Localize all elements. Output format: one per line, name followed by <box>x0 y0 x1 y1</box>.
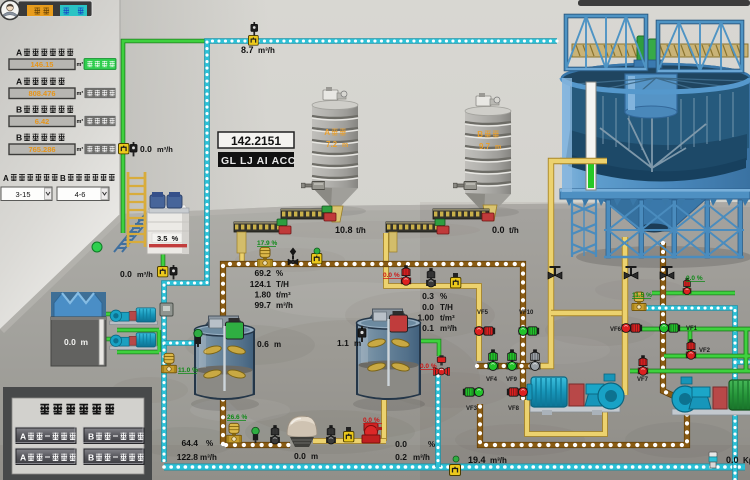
svg-text:VF5: VF5 <box>477 310 489 316</box>
svg-text:765.286: 765.286 <box>28 145 55 154</box>
svg-text:t/m³: t/m³ <box>276 291 291 300</box>
svg-text:A: A <box>20 432 26 442</box>
svg-text:t/h: t/h <box>509 226 519 235</box>
svg-text:B: B <box>88 453 94 463</box>
svg-text:VF6: VF6 <box>610 327 622 333</box>
svg-text:m³/h: m³/h <box>200 453 217 462</box>
svg-text:11.0 %: 11.0 % <box>178 367 198 374</box>
svg-text:11.5 %: 11.5 % <box>632 292 652 299</box>
svg-text:VF9: VF9 <box>506 377 518 383</box>
svg-text:0.3: 0.3 <box>422 291 434 301</box>
svg-text:0.0: 0.0 <box>120 269 132 279</box>
svg-text:808.476: 808.476 <box>28 89 55 98</box>
svg-text:64.4: 64.4 <box>181 438 198 448</box>
svg-text:m: m <box>495 144 501 151</box>
svg-text:0.0 %: 0.0 % <box>420 363 437 370</box>
svg-text:B: B <box>477 130 483 139</box>
svg-text:0.0: 0.0 <box>422 302 434 312</box>
svg-text:Kp: Kp <box>743 456 750 465</box>
svg-text:26.6 %: 26.6 % <box>227 414 247 421</box>
svg-text:t/m³: t/m³ <box>440 314 455 323</box>
svg-text:m³/h: m³/h <box>440 324 457 333</box>
svg-text:m: m <box>274 340 281 349</box>
svg-text:m³: m³ <box>77 146 84 153</box>
svg-text:0.2: 0.2 <box>395 452 407 462</box>
svg-text:A: A <box>20 453 26 463</box>
svg-text:B: B <box>16 105 22 115</box>
svg-text:%: % <box>428 440 435 449</box>
svg-text:19.4: 19.4 <box>468 455 486 465</box>
svg-text:0.0: 0.0 <box>395 439 407 449</box>
svg-text:A: A <box>16 48 22 58</box>
svg-text:VF3: VF3 <box>466 406 478 412</box>
svg-text:m³/h: m³/h <box>490 456 507 465</box>
svg-text:0.0 m: 0.0 m <box>64 337 89 347</box>
svg-text:m³: m³ <box>77 61 84 68</box>
svg-text:VF8: VF8 <box>508 406 520 412</box>
svg-text:m: m <box>311 452 318 461</box>
svg-text:B: B <box>88 432 94 442</box>
svg-text:0.0 %: 0.0 % <box>363 417 380 424</box>
svg-text:B: B <box>16 133 22 143</box>
svg-text:m³/h: m³/h <box>157 145 173 154</box>
svg-text:6.42: 6.42 <box>35 117 50 126</box>
svg-text:m³: m³ <box>77 118 84 125</box>
svg-text:4-6: 4-6 <box>75 190 86 199</box>
svg-text:142.2151: 142.2151 <box>231 134 281 148</box>
svg-text:1.80: 1.80 <box>254 290 271 300</box>
svg-text:99.7: 99.7 <box>254 300 271 310</box>
svg-text:m³/h: m³/h <box>276 301 293 310</box>
svg-text:0.0 %: 0.0 % <box>383 272 400 279</box>
svg-text:VF1: VF1 <box>686 326 698 332</box>
svg-text:m³/h: m³/h <box>258 46 275 55</box>
svg-text:9.7: 9.7 <box>479 142 491 151</box>
svg-text:0.6: 0.6 <box>257 339 269 349</box>
svg-text:%: % <box>440 292 447 301</box>
svg-text:0.0: 0.0 <box>140 144 152 154</box>
svg-text:7.2: 7.2 <box>326 140 338 149</box>
svg-text:%: % <box>206 439 213 448</box>
svg-text:122.8: 122.8 <box>177 452 199 462</box>
svg-text:%: % <box>276 269 283 278</box>
svg-text:m: m <box>342 142 348 149</box>
svg-text:17.9 %: 17.9 % <box>257 240 277 247</box>
svg-text:A: A <box>16 77 22 87</box>
svg-text:m: m <box>354 339 361 348</box>
svg-text:3.5 %: 3.5 % <box>157 234 179 243</box>
svg-text:8.7: 8.7 <box>241 45 254 55</box>
svg-text:0.0: 0.0 <box>492 225 505 235</box>
svg-text:0.0 %: 0.0 % <box>686 275 703 282</box>
svg-text:A: A <box>324 128 330 137</box>
svg-text:VF4: VF4 <box>486 377 498 383</box>
svg-text:m³/h: m³/h <box>413 453 430 462</box>
svg-text:B: B <box>60 174 66 183</box>
svg-text:T/H: T/H <box>440 303 453 312</box>
svg-text:146.15: 146.15 <box>31 60 54 69</box>
svg-text:VF10: VF10 <box>519 310 534 316</box>
svg-text:124.1: 124.1 <box>250 279 272 289</box>
svg-text:m³/h: m³/h <box>137 270 153 279</box>
svg-text:0.0: 0.0 <box>294 451 306 461</box>
svg-text:10.8: 10.8 <box>335 225 353 235</box>
svg-text:A: A <box>3 174 9 183</box>
svg-text:3-15: 3-15 <box>15 190 30 199</box>
svg-text:1.1: 1.1 <box>337 338 349 348</box>
svg-text:0.1: 0.1 <box>422 323 434 333</box>
svg-text:GL LJ AI ACC: GL LJ AI ACC <box>221 155 296 167</box>
svg-text:VF7: VF7 <box>637 377 649 383</box>
svg-text:VF2: VF2 <box>699 348 711 354</box>
svg-text:m³: m³ <box>77 90 84 97</box>
svg-text:T/H: T/H <box>276 280 289 289</box>
svg-text:69.2: 69.2 <box>254 268 271 278</box>
svg-text:1.00: 1.00 <box>417 313 434 323</box>
svg-text:t/h: t/h <box>356 226 366 235</box>
svg-text:0.0: 0.0 <box>726 455 739 465</box>
